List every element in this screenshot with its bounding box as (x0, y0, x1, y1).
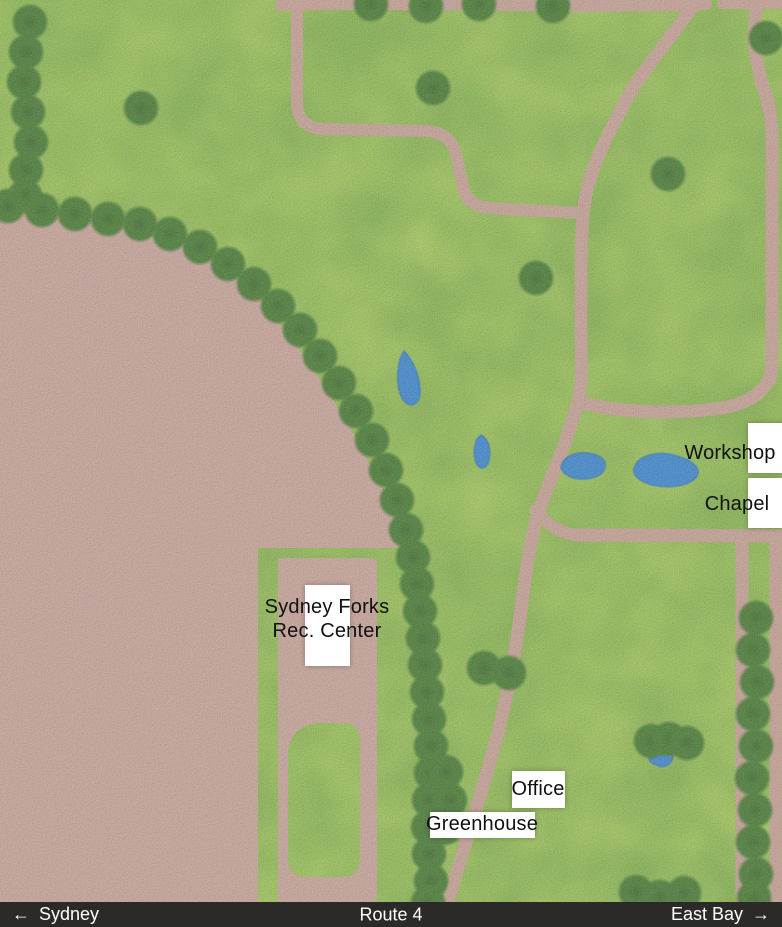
rec-center-label-line2: Rec. Center (265, 619, 390, 643)
route-bar: ← Sydney Route 4 East Bay → (0, 902, 782, 927)
exit-west-label: Sydney (39, 904, 99, 925)
route-name: Route 4 (359, 904, 422, 925)
park-map: Workshop Chapel Sydney Forks Rec. Center… (0, 0, 782, 927)
chapel-label: Chapel (705, 492, 770, 516)
east-arrow-icon: → (752, 904, 770, 925)
west-arrow-icon: ← (12, 904, 30, 925)
rec-center-label: Sydney Forks Rec. Center (265, 595, 390, 643)
exit-east[interactable]: East Bay → (671, 904, 770, 925)
office-label: Office (511, 777, 564, 801)
greenhouse-label: Greenhouse (426, 812, 538, 836)
exit-west[interactable]: ← Sydney (12, 904, 99, 925)
rec-center-label-line1: Sydney Forks (265, 595, 390, 619)
workshop-label: Workshop (684, 441, 775, 465)
map-canvas (0, 0, 782, 927)
texture-grain (0, 0, 782, 927)
exit-east-label: East Bay (671, 904, 743, 925)
